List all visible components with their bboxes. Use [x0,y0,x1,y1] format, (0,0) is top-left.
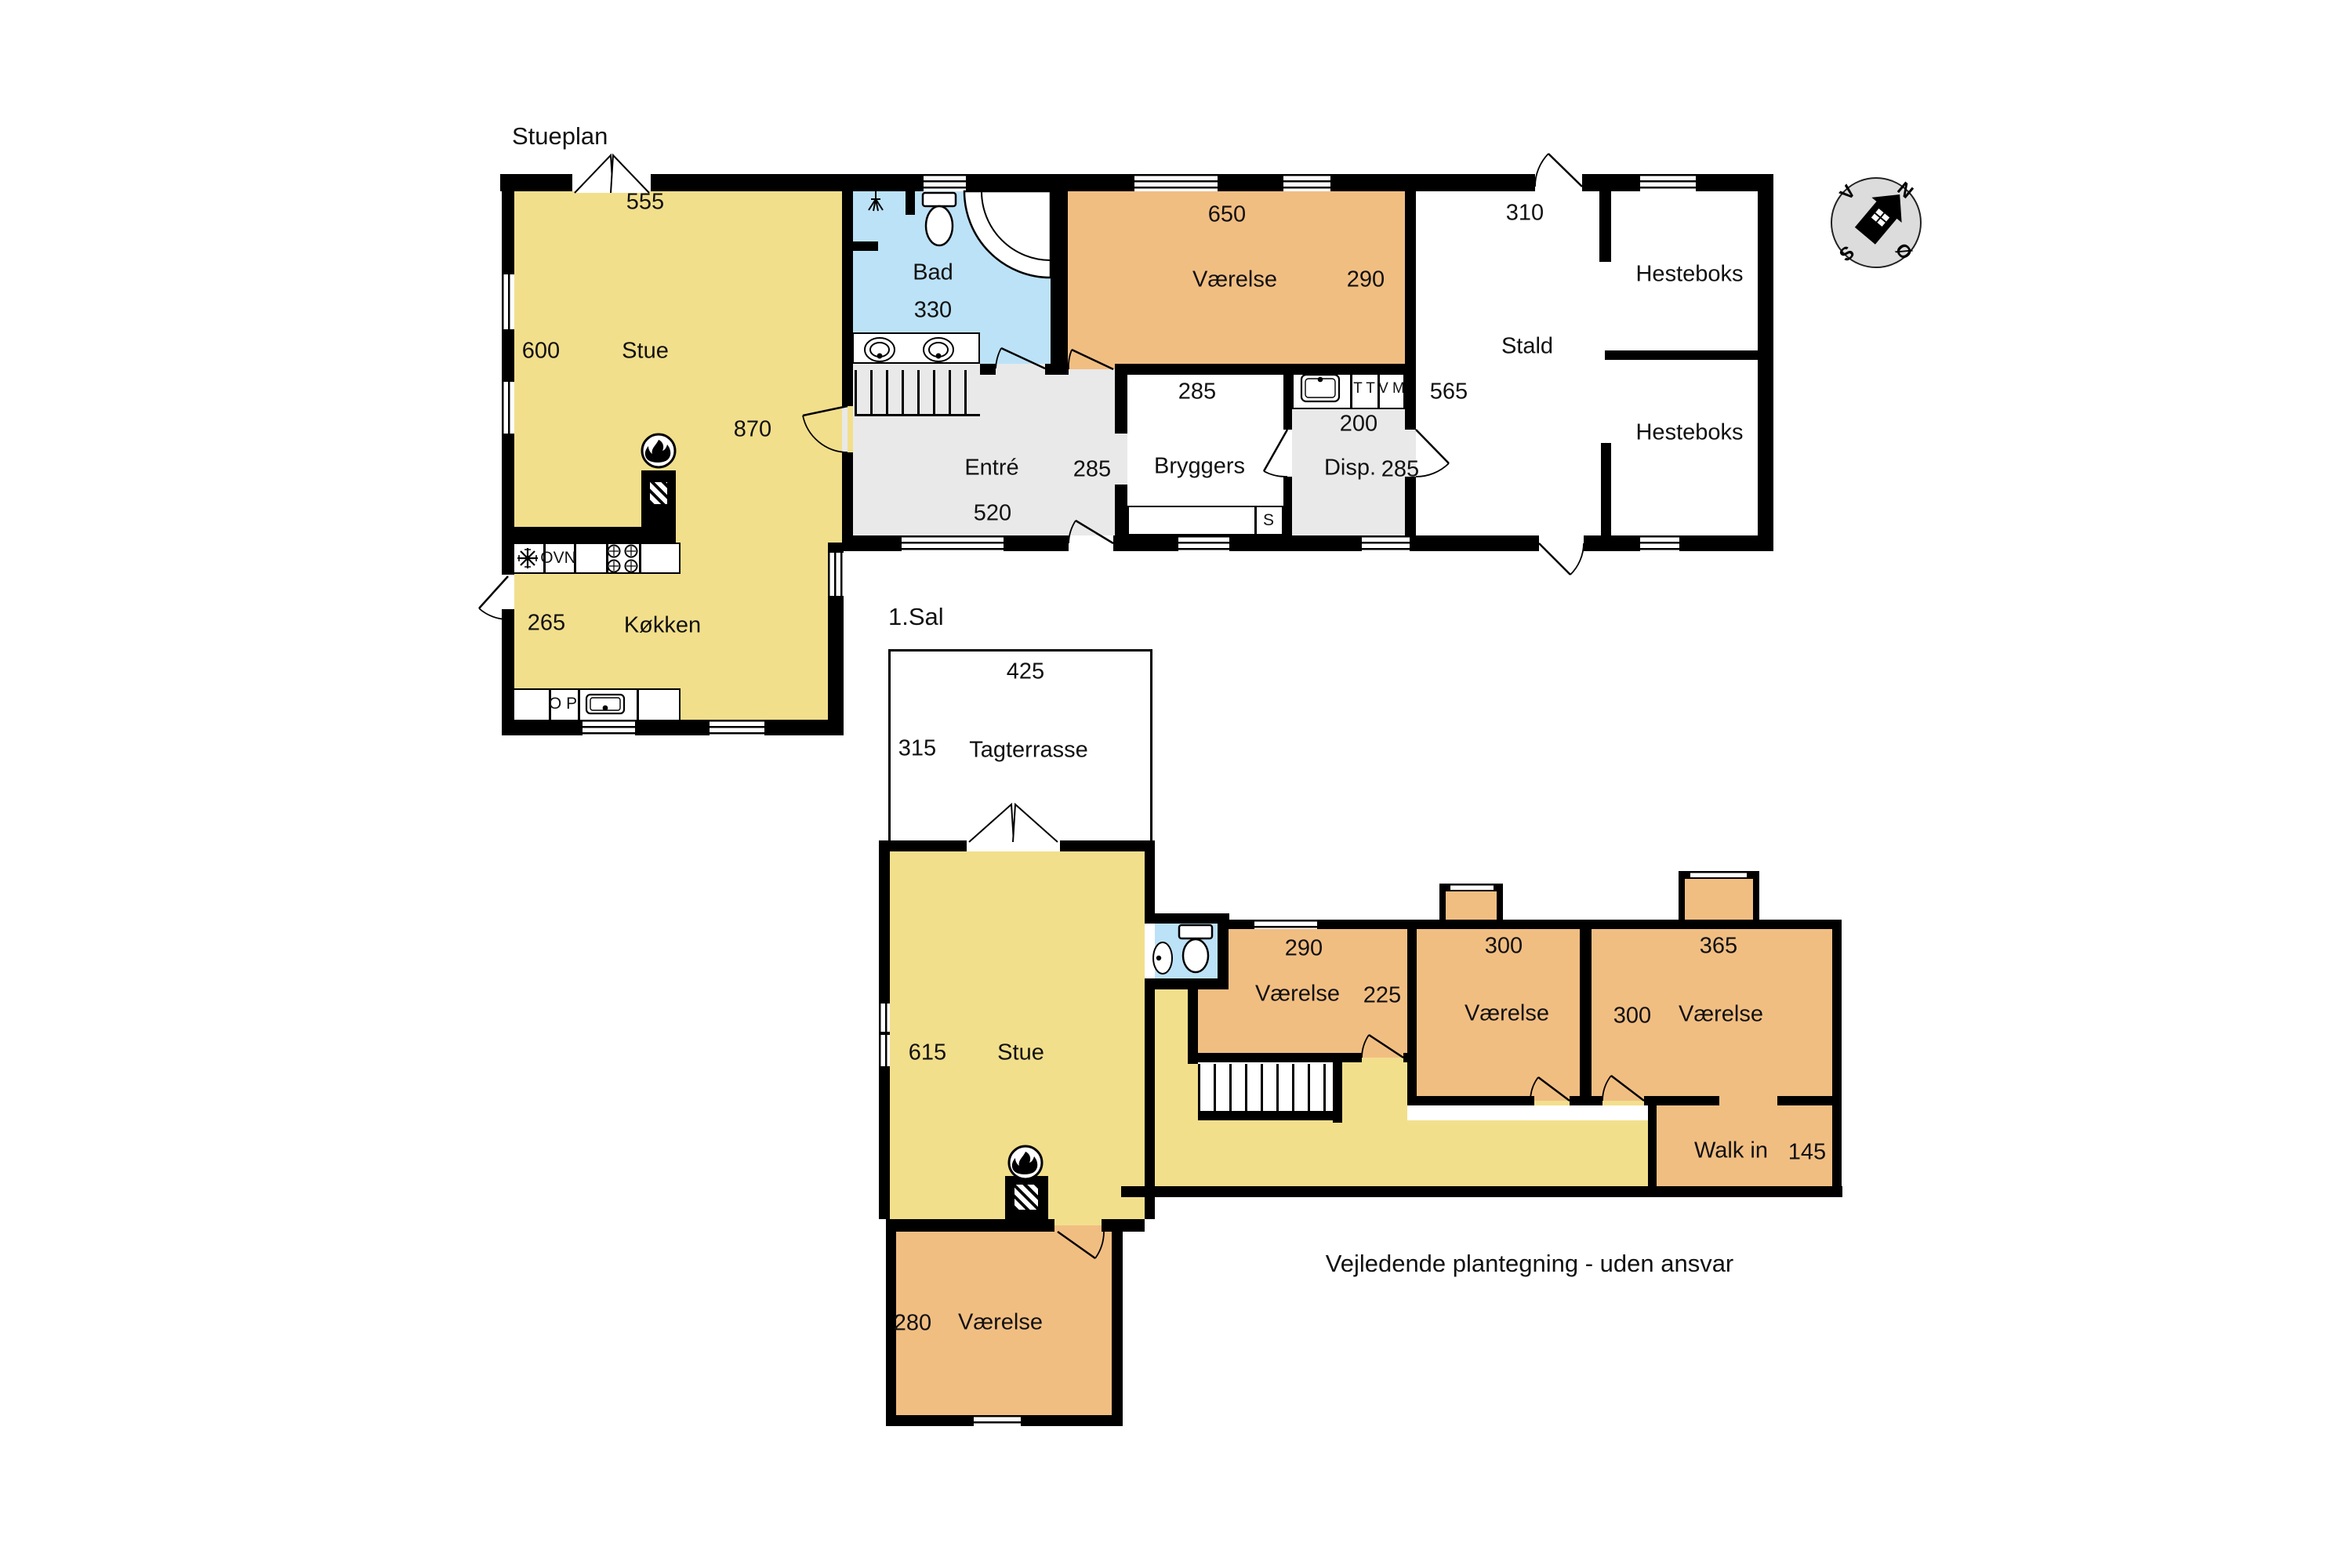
room-label-bad: Bad [913,260,953,286]
sink-label: S [1263,511,1274,530]
french-door [611,155,649,193]
dim-label: 285 [1381,457,1419,483]
door-leaf [1416,430,1449,463]
sink-icon [1153,942,1172,974]
door-swing [1095,1232,1104,1258]
dim-label: 870 [734,417,771,443]
dim-label: 300 [1485,934,1523,960]
room-label-bryggers: Bryggers [1154,454,1245,480]
dim-label: 650 [1208,202,1246,228]
door-swing [1069,350,1072,369]
dim-label: 145 [1788,1140,1826,1166]
compass-rose: N V S Ø [1831,178,1921,267]
dim-label: 365 [1700,934,1737,960]
room-label-stue-ground: Stue [622,339,669,365]
door-swing [1362,1035,1369,1058]
room-label-vaerelse4: Værelse [958,1310,1043,1336]
dim-label: 200 [1340,412,1377,437]
toilet-icon [923,193,956,245]
disclaimer-text: Vejledende plantegning - uden ansvar [1326,1250,1734,1278]
dim-label: 265 [528,611,565,637]
dim-label: 520 [974,501,1011,527]
dim-label: 600 [522,339,560,365]
floor-plan: N V S Ø Stueplan 1.Sal 555 600 Stue 870 … [0,0,2352,1568]
door-leaf [1264,430,1287,471]
snowflake-icon [517,548,538,568]
french-door [969,804,1014,842]
dim-label: 280 [894,1311,931,1337]
door-leaf [479,576,508,608]
room-label-walkin: Walk in [1694,1138,1768,1164]
dim-label: 285 [1073,457,1111,483]
door-swing [1069,521,1076,543]
room-label-stue-first: Stue [997,1040,1044,1066]
door-leaf [1058,1232,1095,1258]
door-swing [1570,543,1584,575]
dim-label: 425 [1007,659,1044,685]
door-swing [1264,471,1287,477]
dim-label: 555 [626,190,664,216]
fire-icon [642,434,675,467]
dim-label: 290 [1285,936,1323,962]
door-leaf [1611,1076,1644,1101]
dim-label: 615 [909,1040,946,1066]
fire-icon [1009,1146,1042,1179]
door-leaf [1369,1035,1403,1058]
dryer-label: T T [1353,380,1375,397]
dishwasher-label: O P [549,695,577,713]
first-floor-title: 1.Sal [888,603,944,631]
door-swing [1530,1077,1538,1101]
dim-label: 225 [1363,983,1401,1009]
door-leaf [1539,543,1570,575]
washer-label: V M [1378,380,1405,397]
dim-label: 330 [914,298,952,324]
ground-floor-title: Stueplan [512,122,608,151]
room-label-hesteboks-bottom: Hesteboks [1635,420,1743,446]
room-label-disp: Disp. [1324,456,1376,481]
four-burner-hob-icon [608,546,637,572]
dim-label: 300 [1613,1004,1651,1029]
door-leaf [1072,350,1113,369]
room-label-vaerelse2: Værelse [1465,1001,1549,1027]
door-leaf [803,406,848,416]
room-label-koekken: Køkken [624,613,701,639]
dim-label: 565 [1430,379,1468,405]
door-swing [996,348,1001,368]
room-label-vaerelse1: Værelse [1255,982,1340,1007]
sink-icon [865,338,953,361]
dim-label: 310 [1506,201,1544,227]
room-label-vaerelse-ground: Værelse [1192,267,1277,293]
dim-label: 315 [898,736,936,762]
room-label-stald: Stald [1501,334,1553,360]
oven-label: OVN [540,549,576,568]
door-leaf [1076,521,1113,543]
toilet-icon [1179,925,1212,972]
sink-icon [1301,375,1339,401]
door-leaf [1001,348,1045,368]
door-swing [1535,154,1548,187]
door-leaf [1538,1077,1570,1101]
room-label-hesteboks-top: Hesteboks [1635,262,1743,288]
symbol-overlay: N V S Ø [0,0,2352,1568]
sink-icon [586,695,624,713]
door-swing [479,608,508,619]
dim-label: 290 [1347,267,1385,293]
door-swing [1416,463,1449,477]
room-label-entre: Entré [964,456,1018,481]
french-door [575,155,613,193]
door-leaf [1548,154,1582,187]
room-label-vaerelse3: Værelse [1679,1002,1763,1028]
dim-label: 285 [1178,379,1216,405]
door-swing [803,416,848,452]
shower-tray [964,191,1051,278]
room-label-tagterrasse: Tagterrasse [969,738,1088,764]
door-swing [1602,1076,1611,1101]
french-door [1013,804,1058,842]
shower-head-icon [869,191,883,211]
